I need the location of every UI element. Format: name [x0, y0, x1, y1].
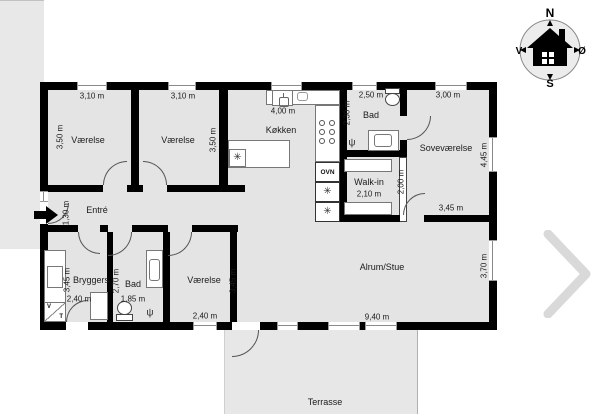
stove-burner-icon: [319, 138, 325, 144]
window: [40, 191, 48, 202]
dim-alrum-width: 9,40 m: [365, 313, 389, 322]
dim-vaerelse-nw-width: 3,10 m: [80, 92, 104, 101]
wardrobe: [344, 159, 392, 172]
chevron-right-icon: [542, 230, 592, 318]
room-label-bryggers: Bryggers: [73, 275, 109, 285]
room-label-alrum: Alrum/Stue: [360, 262, 405, 272]
stove-burner-icon: [329, 138, 335, 144]
wall: [340, 215, 400, 222]
room-label-sovevaerelse: Soveværelse: [420, 143, 473, 153]
toilet-icon: [385, 93, 400, 106]
dryer-label: T: [59, 314, 63, 320]
wardrobe: [344, 202, 392, 215]
sink-icon: [374, 134, 392, 147]
compass-icon: N V Ø S: [512, 4, 592, 88]
room-label-vaerelse-nw: Værelse: [71, 135, 105, 145]
dim-walkin-depth: 2,00 m: [397, 170, 406, 194]
floorplan-page: Terrasse: [0, 0, 600, 414]
dim-sovevaerelse-width: 3,00 m: [436, 91, 460, 100]
window: [435, 82, 467, 90]
wall: [100, 225, 108, 232]
washer-label: V: [47, 304, 51, 310]
washer-dryer-icon: V T: [44, 302, 66, 322]
compass-south-label: S: [546, 78, 553, 88]
stove-burner-icon: [329, 129, 335, 135]
stove-burner-icon: [319, 120, 325, 126]
room-label-vaerelse-n: Værelse: [161, 135, 195, 145]
dim-sovevaerelse-south: 3,45 m: [439, 204, 463, 213]
room-label-bad-s: Bad: [125, 279, 141, 289]
dim-vaerelse-n-depth: 3,50 m: [209, 128, 218, 152]
entrance-arrow-icon: [34, 206, 60, 224]
dim-vaerelse-s-depth: 3,45 m: [229, 269, 238, 293]
window: [328, 322, 360, 330]
dim-bad-s-width: 1,85 m: [121, 295, 145, 304]
dim-koekken-width: 4,00 m: [271, 107, 295, 116]
wall: [400, 90, 407, 116]
dim-bad-n-width: 2,50 m: [359, 91, 383, 100]
dim-vaerelse-nw-depth: 3,50 m: [56, 125, 65, 149]
dim-walkin-width: 2,10 m: [357, 190, 381, 199]
window: [77, 82, 107, 90]
window: [271, 82, 302, 90]
room-label-walkin: Walk-in: [354, 177, 384, 187]
dim-bad-n-depth: 2,30 m: [343, 101, 352, 125]
next-image-button[interactable]: [542, 230, 592, 318]
dim-vaerelse-s-width: 2,40 m: [193, 312, 217, 321]
wall: [400, 140, 407, 157]
window: [168, 82, 196, 90]
dim-bad-s-depth: 2,70 m: [112, 269, 121, 293]
window: [489, 240, 497, 281]
room-label-vaerelse-s: Værelse: [187, 275, 221, 285]
utility-sink: [47, 266, 63, 288]
cabinet: [90, 292, 108, 320]
room-label-entre: Entré: [86, 205, 108, 215]
fridge-snowflake-icon: ✳: [315, 202, 340, 222]
faucet-icon: [279, 97, 289, 107]
wall: [167, 185, 245, 192]
wall: [132, 225, 168, 232]
wall: [48, 185, 103, 192]
sink-icon: [149, 259, 160, 281]
shower-drain-icon: ψ: [146, 308, 153, 319]
room-label-bad-n: Bad: [363, 110, 379, 120]
window: [277, 322, 298, 330]
room-label-koekken: Køkken: [266, 125, 297, 135]
dim-alrum-depth: 3,70 m: [480, 254, 489, 278]
dim-bryggers-depth: 3,45 m: [63, 268, 72, 292]
window: [193, 322, 217, 330]
dim-sovevaerelse-depth: 4,45 m: [480, 143, 489, 167]
wall: [127, 185, 143, 192]
toilet-icon: [116, 314, 133, 321]
window: [365, 322, 397, 330]
window: [352, 82, 377, 90]
wall: [131, 90, 139, 192]
stove-burner-icon: [319, 129, 325, 135]
compass-east-label: Ø: [578, 46, 586, 57]
dim-bryggers-width: 2,40 m: [67, 295, 91, 304]
freezer-snowflake-icon: ✳: [315, 182, 340, 202]
dim-entre-width: 1,30 m: [62, 201, 71, 225]
window: [489, 137, 497, 172]
terrace-door-opening: [232, 322, 260, 330]
wall: [424, 215, 489, 222]
fridge-snowflake-icon: ✳: [229, 149, 246, 167]
wall: [48, 225, 78, 232]
wall: [219, 90, 228, 192]
dim-vaerelse-n-width: 3,10 m: [171, 92, 195, 101]
room-label-terrasse: Terrasse: [308, 397, 343, 407]
compass-north-label: N: [546, 6, 555, 20]
stove-burner-icon: [329, 120, 335, 126]
wall: [347, 150, 400, 157]
back-door-opening: [66, 322, 88, 330]
oven: OVN: [315, 162, 340, 182]
kitchen-sink: [272, 90, 293, 106]
shower-drain-icon: ψ: [348, 138, 355, 149]
small-appliance-icon: [297, 92, 308, 101]
compass-west-label: V: [516, 46, 523, 57]
